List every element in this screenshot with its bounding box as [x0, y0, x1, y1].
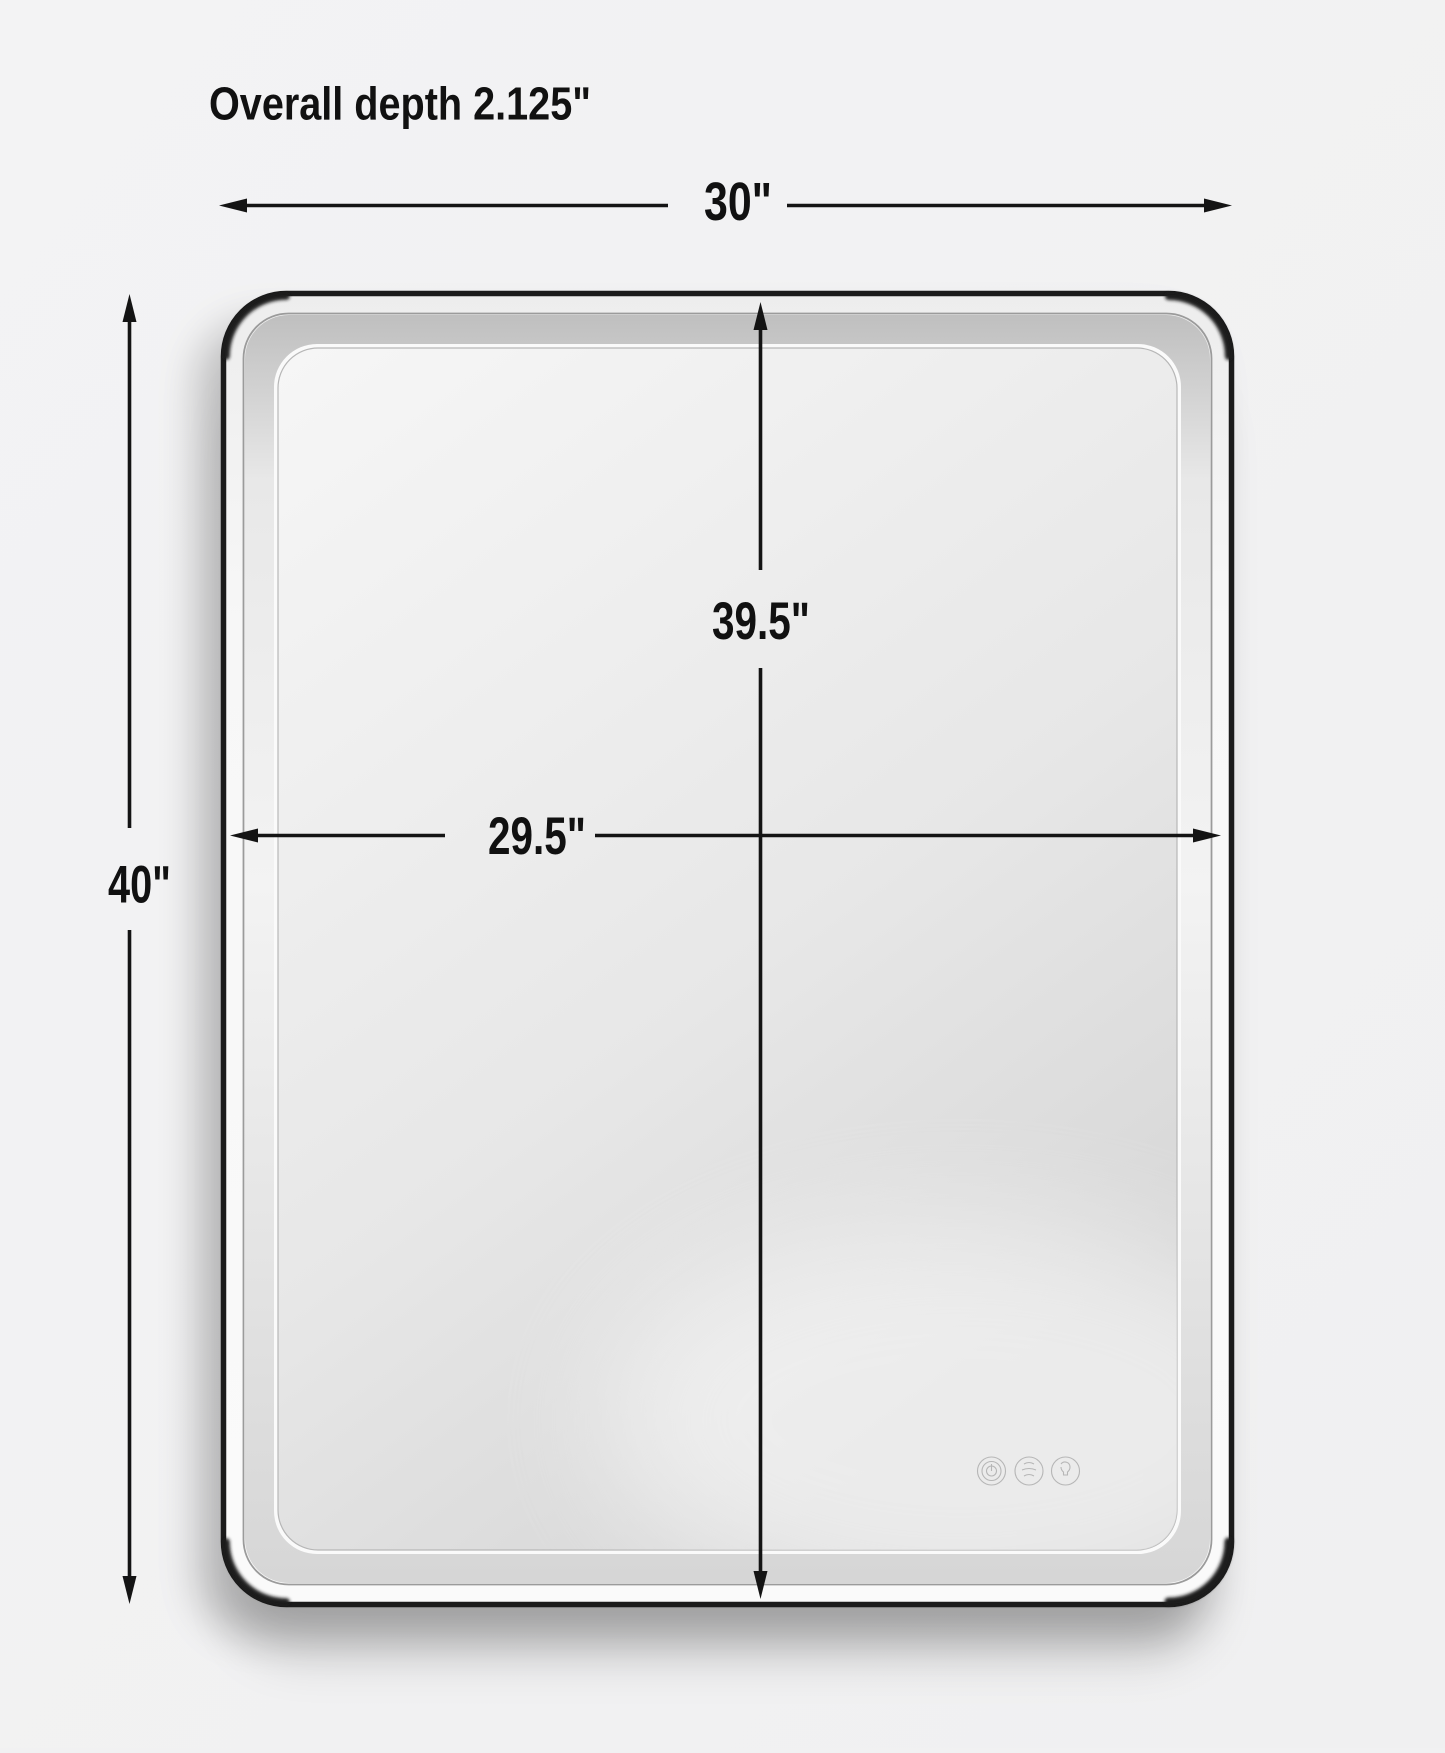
svg-text:29.5": 29.5" [488, 807, 586, 866]
svg-text:39.5": 39.5" [712, 592, 810, 651]
svg-text:Overall depth 2.125": Overall depth 2.125" [209, 78, 591, 130]
svg-text:30": 30" [704, 172, 772, 232]
svg-text:40": 40" [108, 856, 171, 915]
